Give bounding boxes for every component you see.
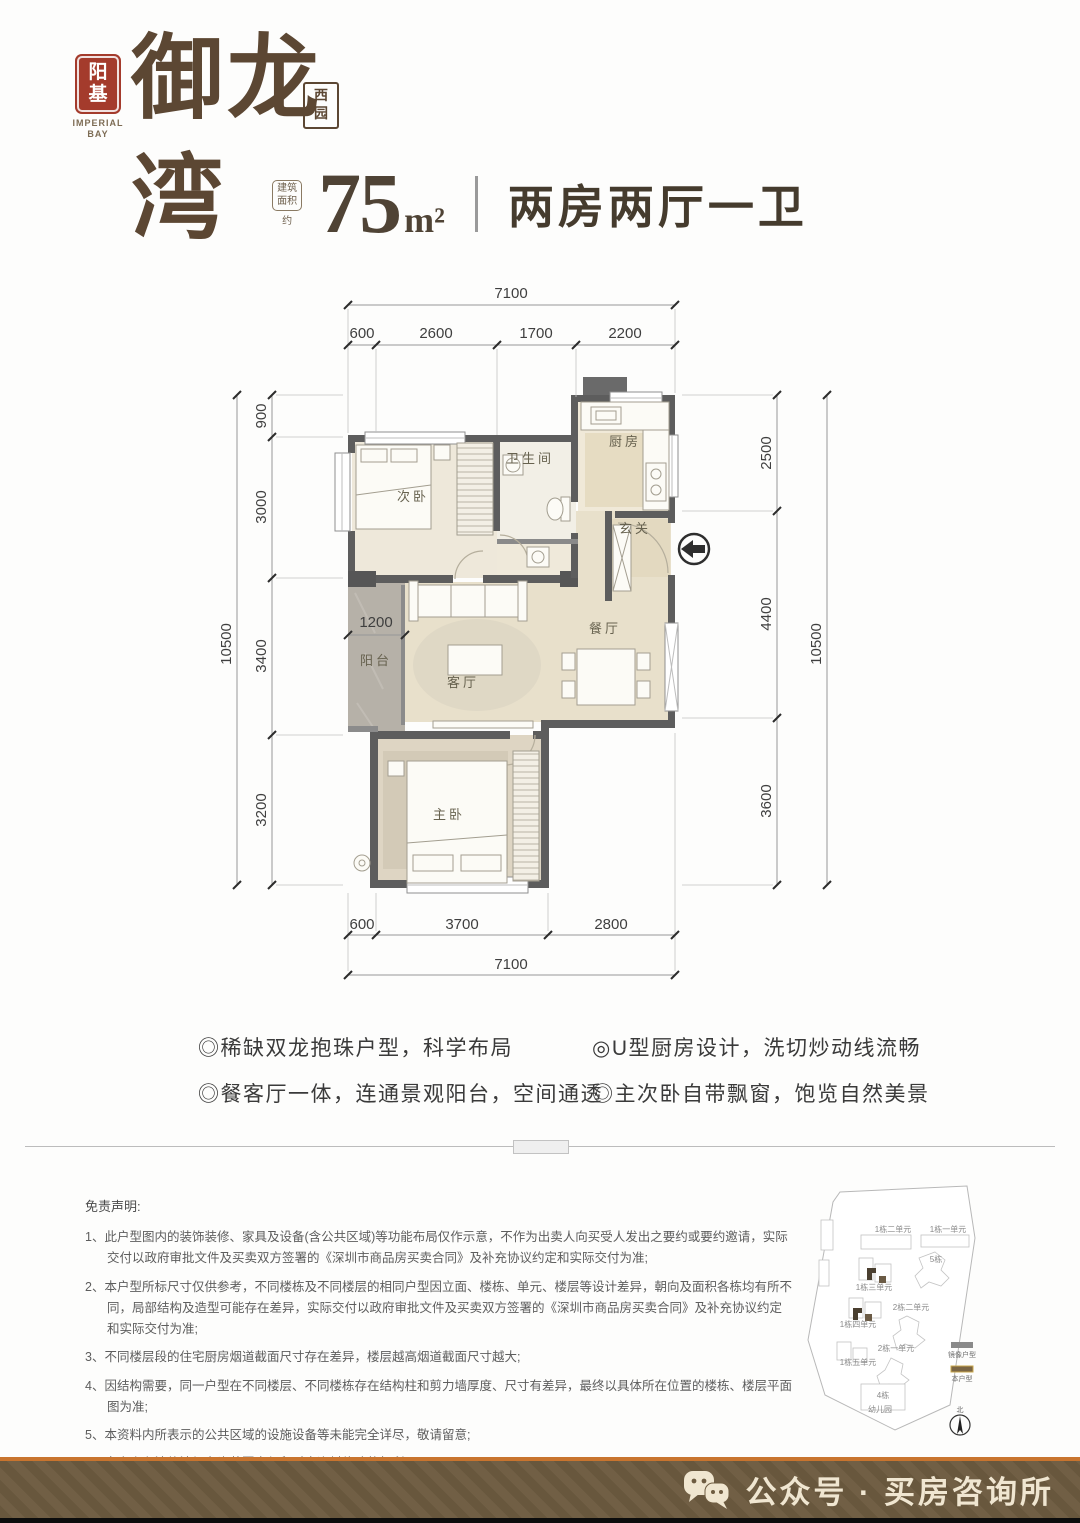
dim-top-total: 7100 [494,285,527,302]
brand-name-en: IMPERIAL BAY [63,118,133,141]
disclaimer-title: 免责声明: [85,1196,793,1215]
siteplan-drawing: 1栋二单元 1栋一单元 5栋 1栋三单元 2栋二单元 1栋四单元 2栋一单元 1… [795,1180,1075,1458]
room-label-bedroom2: 次卧 [397,489,429,504]
svg-text:2500: 2500 [758,436,775,469]
disclaimer-item: 2、本户型所标尺寸仅供参考，不同楼栋及不同楼层的相同户型因立面、楼栋、单元、楼层… [85,1277,793,1341]
disclaimer-item: 5、本资料内所表示的公共区域的设施设备等未能完全详尽，敬请留意; [85,1425,793,1446]
layout-title: 两房两厅一卫 [508,171,808,237]
area-approx-badge: 建筑 面积 约 [272,180,302,227]
legend-swatch-this-unit [951,1366,973,1372]
feature-1: ◎稀缺双龙抱珠户型，科学布局 [198,1032,513,1062]
svg-text:幼儿园: 幼儿园 [868,1404,892,1414]
footer-banner: 公众号 · 买房咨询所 [0,1457,1080,1518]
room-label-bath: 卫生间 [506,451,554,466]
dims-right: 2500 4400 3600 10500 [682,391,831,889]
wechat-account-label: 公众号 · 买房咨询所 [745,1467,1054,1512]
disclaimer-item: 1、此户型图内的装饰装修、家具及设备(含公共区域)等功能布局仅作示意，不作为出卖… [85,1227,793,1270]
svg-text:1栋五单元: 1栋五单元 [840,1357,876,1367]
room-label-dining: 餐厅 [589,621,621,636]
svg-text:2栋一单元: 2栋一单元 [878,1343,914,1353]
entry-arrow-icon [679,534,709,564]
feature-3: ◎餐客厅一体，连通景观阳台，空间通透 [198,1078,603,1108]
footer-black-strip [0,1518,1080,1523]
area-value-group: 75 m² [318,163,445,245]
svg-text:镜像户型: 镜像户型 [948,1350,976,1359]
room-label-foyer: 玄关 [619,521,651,536]
svg-text:1栋一单元: 1栋一单元 [930,1224,966,1234]
compass-icon: 北 [950,1406,970,1435]
brand-subname-box: 西 园 [303,82,339,129]
legend-swatch-mirror [951,1342,973,1348]
svg-text:本户型: 本户型 [952,1374,973,1383]
siteplan: 1栋二单元 1栋一单元 5栋 1栋三单元 2栋二单元 1栋四单元 2栋一单元 1… [795,1180,1075,1458]
room-label-balcony: 阳台 [360,653,392,668]
feature-4: ◎主次卧自带飘窗，饱览自然美景 [592,1078,930,1108]
svg-text:北: 北 [957,1406,964,1414]
feature-2: ◎U型厨房设计，洗切炒动线流畅 [592,1032,921,1062]
svg-text:3700: 3700 [445,916,478,933]
svg-text:600: 600 [349,325,374,342]
svg-text:1栋二单元: 1栋二单元 [875,1224,911,1234]
seal-char-2: 基 [88,84,107,106]
svg-text:600: 600 [349,916,374,933]
disclaimer-item: 4、因结构需要，同一户型在不同楼层、不同楼栋存在结构柱和剪力墙厚度、尺寸有差异，… [85,1376,793,1419]
room-label-kitchen: 厨房 [609,434,641,449]
svg-text:1栋四单元: 1栋四单元 [840,1319,876,1329]
dims-left: 10500 900 3000 3400 3200 [218,391,343,889]
seal-char-1: 阳 [88,62,107,84]
floorplan: 次卧 卫生间 厨房 玄关 餐厅 阳台 客厅 主卧 1200 7100 [215,283,855,1003]
svg-text:2200: 2200 [608,325,641,342]
svg-text:3000: 3000 [253,490,270,523]
svg-text:4400: 4400 [758,597,775,630]
floorplan-drawing: 次卧 卫生间 厨房 玄关 餐厅 阳台 客厅 主卧 1200 7100 [215,283,855,1003]
dim-balcony-width: 1200 [359,614,392,631]
area-unit: m² [404,199,445,241]
svg-text:1700: 1700 [519,325,552,342]
headline-divider [475,176,478,232]
dim-bottom-total: 7100 [494,956,527,973]
svg-text:4栋: 4栋 [877,1390,889,1400]
area-value: 75 [318,163,400,245]
dim-left-total: 10500 [218,623,235,665]
wechat-icon [683,1469,733,1511]
divider-chip [513,1140,569,1154]
brand-seal-icon: 阳 基 [75,54,121,114]
svg-text:2800: 2800 [594,916,627,933]
svg-text:5栋: 5栋 [930,1254,942,1264]
headline: 建筑 面积 约 75 m² 两房两厅一卫 [0,163,1080,245]
svg-text:1栋三单元: 1栋三单元 [856,1282,892,1292]
svg-text:2栋二单元: 2栋二单元 [893,1302,929,1312]
dim-right-total: 10500 [808,623,825,665]
svg-text:3600: 3600 [758,784,775,817]
svg-text:2600: 2600 [419,325,452,342]
svg-text:3200: 3200 [253,793,270,826]
disclaimer-item: 3、不同楼层段的住宅厨房烟道截面尺寸存在差异，楼层越高烟道截面尺寸越大; [85,1347,793,1368]
svg-text:900: 900 [253,403,270,428]
room-label-master: 主卧 [433,807,465,822]
room-label-living: 客厅 [447,675,479,690]
brand-logo: 阳 基 IMPERIAL BAY 御龙湾 西 园 [75,38,375,168]
flyer-page: 阳 基 IMPERIAL BAY 御龙湾 西 园 建筑 面积 约 75 m² 两… [0,0,1080,1523]
svg-text:3400: 3400 [253,639,270,672]
